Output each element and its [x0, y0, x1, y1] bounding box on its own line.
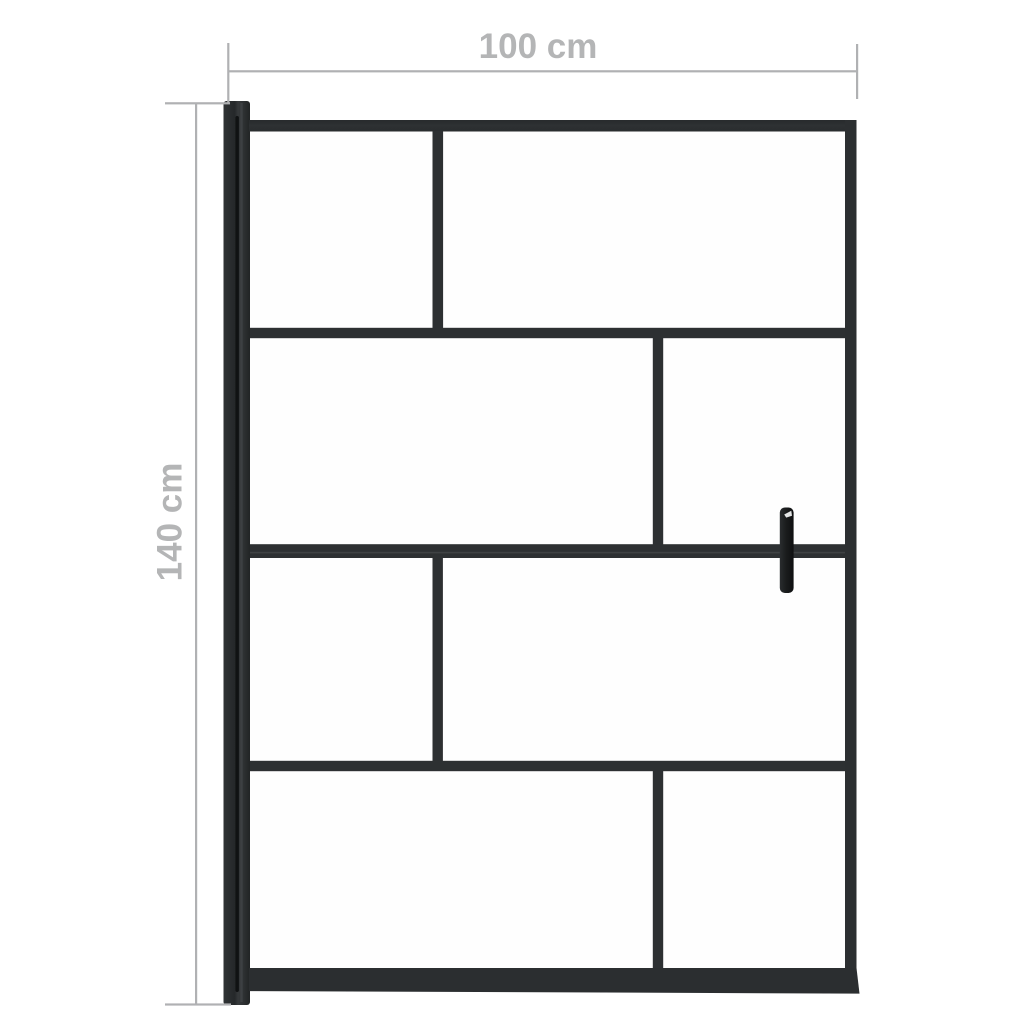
- svg-text:140 cm: 140 cm: [151, 463, 190, 582]
- svg-text:100 cm: 100 cm: [479, 27, 598, 66]
